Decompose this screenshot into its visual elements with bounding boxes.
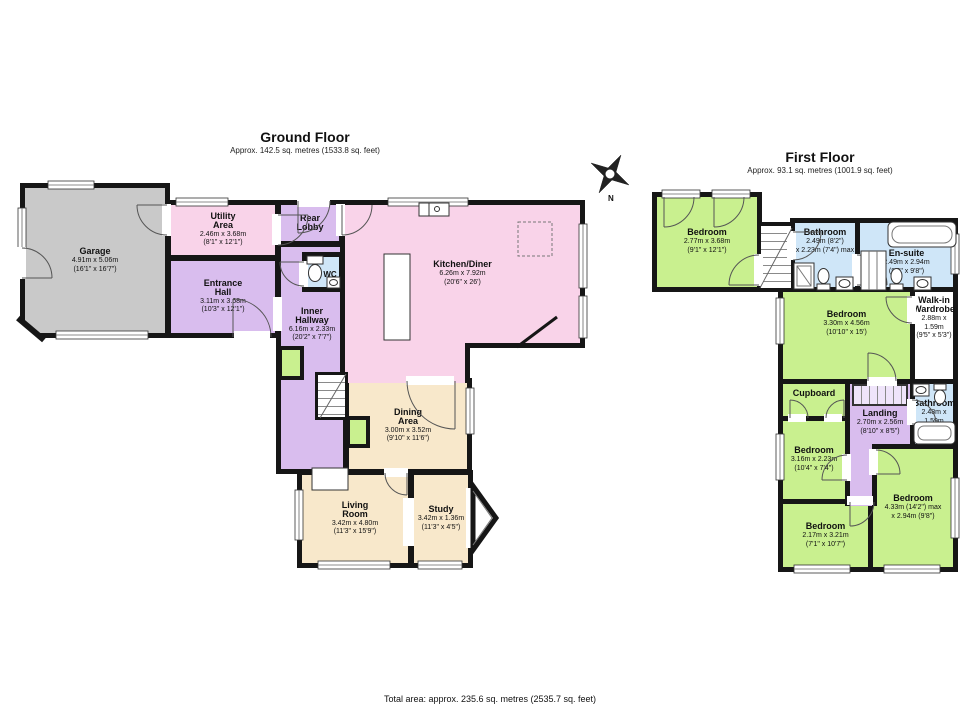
room-label: En-suite 2.49m x 2.94m (8'2" x 9'8") <box>883 233 929 277</box>
staircase <box>757 222 795 292</box>
room-kitchen-extension <box>340 343 470 383</box>
room-label: Bedroom 3.16m x 2.23m (10'4" x 7'4") <box>791 446 837 474</box>
room-bedroom-5: Bedroom 4.33m (14'2") max x 2.94m (9'8") <box>868 444 958 572</box>
room-rear-lobby: Rear Lobby <box>276 200 344 246</box>
room-label: Entrance Hall 3.11m x 3.68m (10'3" x 12'… <box>197 279 249 315</box>
room-label: Garage 4.91m x 5.06m (16'1" x 16'7") <box>72 247 118 275</box>
room-label: Bedroom 4.33m (14'2") max x 2.94m (9'8") <box>885 494 942 522</box>
room-bedroom-1: Bedroom 2.77m x 3.68m (9'1" x 12'1") <box>652 192 762 292</box>
room-label: Bathroom 2.49m (8'2") x 2.23m (7'4") max <box>795 223 855 256</box>
staircase <box>315 372 348 420</box>
room-cupboard: Cupboard <box>778 379 850 421</box>
room-label: Bathroom 2.48m x 1.59m (8'2" x 5'3") <box>913 393 956 436</box>
closet <box>346 416 370 448</box>
room-walk-in-wardrobe: Walk-in Wardrobe 2.88m x 1.59m (9'5" x 5… <box>910 287 958 384</box>
first-floor-subtitle: Approx. 93.1 sq. metres (1001.9 sq. feet… <box>710 166 930 175</box>
room-label: Kitchen/Diner 6.26m x 7.92m (20'6" x 26'… <box>433 260 492 288</box>
room-label: WC <box>309 263 336 280</box>
room-label: Living Room 3.42m x 4.80m (11'3" x 15'9"… <box>332 501 378 537</box>
bay-window <box>473 486 496 550</box>
room-study: Study 3.42m x 1.36m (11'3" x 4'5") <box>409 470 473 568</box>
room-label: Rear Lobby <box>292 214 328 233</box>
room-bedroom-2: Bedroom 3.30m x 4.56m (10'10" x 15') <box>778 287 915 384</box>
room-label: Bedroom 3.30m x 4.56m (10'10" x 15') <box>823 310 869 362</box>
room-label: Cupboard <box>793 389 836 411</box>
room-living-room: Living Room 3.42m x 4.80m (11'3" x 15'9"… <box>297 470 413 568</box>
room-bathroom-small: Bathroom 2.48m x 1.59m (8'2" x 5'3") <box>910 379 958 449</box>
room-label: Walk-in Wardrobe 2.88m x 1.59m (9'5" x 5… <box>912 296 956 375</box>
room-garage: Garage 4.91m x 5.06m (16'1" x 16'7") <box>20 183 170 338</box>
closet <box>278 346 304 380</box>
room-label: Utility Area 2.46m x 3.68m (8'1" x 12'1"… <box>200 212 246 248</box>
room-label: Bedroom 2.77m x 3.68m (9'1" x 12'1") <box>684 228 730 256</box>
room-kitchen-diner: Kitchen/Diner 6.26m x 7.92m (20'6" x 26'… <box>340 200 585 348</box>
room-label: Study 3.42m x 1.36m (11'3" x 4'5") <box>418 505 464 533</box>
first-floor-corridor <box>845 444 877 506</box>
compass-north-label: N <box>608 194 614 203</box>
room-label: Bedroom 2.17m x 3.21m (7'1" x 10'7") <box>802 522 848 550</box>
floorplan: Ground Floor Approx. 142.5 sq. metres (1… <box>0 0 980 712</box>
bay-window-glass <box>473 491 492 545</box>
room-entrance-hall: Entrance Hall 3.11m x 3.68m (10'3" x 12'… <box>166 256 280 338</box>
first-floor-title: First Floor <box>710 149 930 165</box>
compass-icon: N <box>591 155 629 203</box>
room-bathroom-top: Bathroom 2.49m (8'2") x 2.23m (7'4") max <box>790 218 860 292</box>
staircase <box>852 384 908 406</box>
room-wc: WC <box>302 252 344 292</box>
room-ensuite: En-suite 2.49m x 2.94m (8'2" x 9'8") <box>855 218 958 292</box>
room-bedroom-4: Bedroom 2.17m x 3.21m (7'1" x 10'7") <box>778 499 873 572</box>
room-bedroom-3: Bedroom 3.16m x 2.23m (10'4" x 7'4") <box>778 416 850 504</box>
room-utility-area: Utility Area 2.46m x 3.68m (8'1" x 12'1"… <box>166 200 280 260</box>
ground-floor-subtitle: Approx. 142.5 sq. metres (1533.8 sq. fee… <box>140 146 470 155</box>
ground-floor-title: Ground Floor <box>140 129 470 145</box>
total-area-text: Total area: approx. 235.6 sq. metres (25… <box>0 694 980 704</box>
room-label: Dining Area 3.00m x 3.52m (9'10" x 11'6"… <box>385 408 431 444</box>
